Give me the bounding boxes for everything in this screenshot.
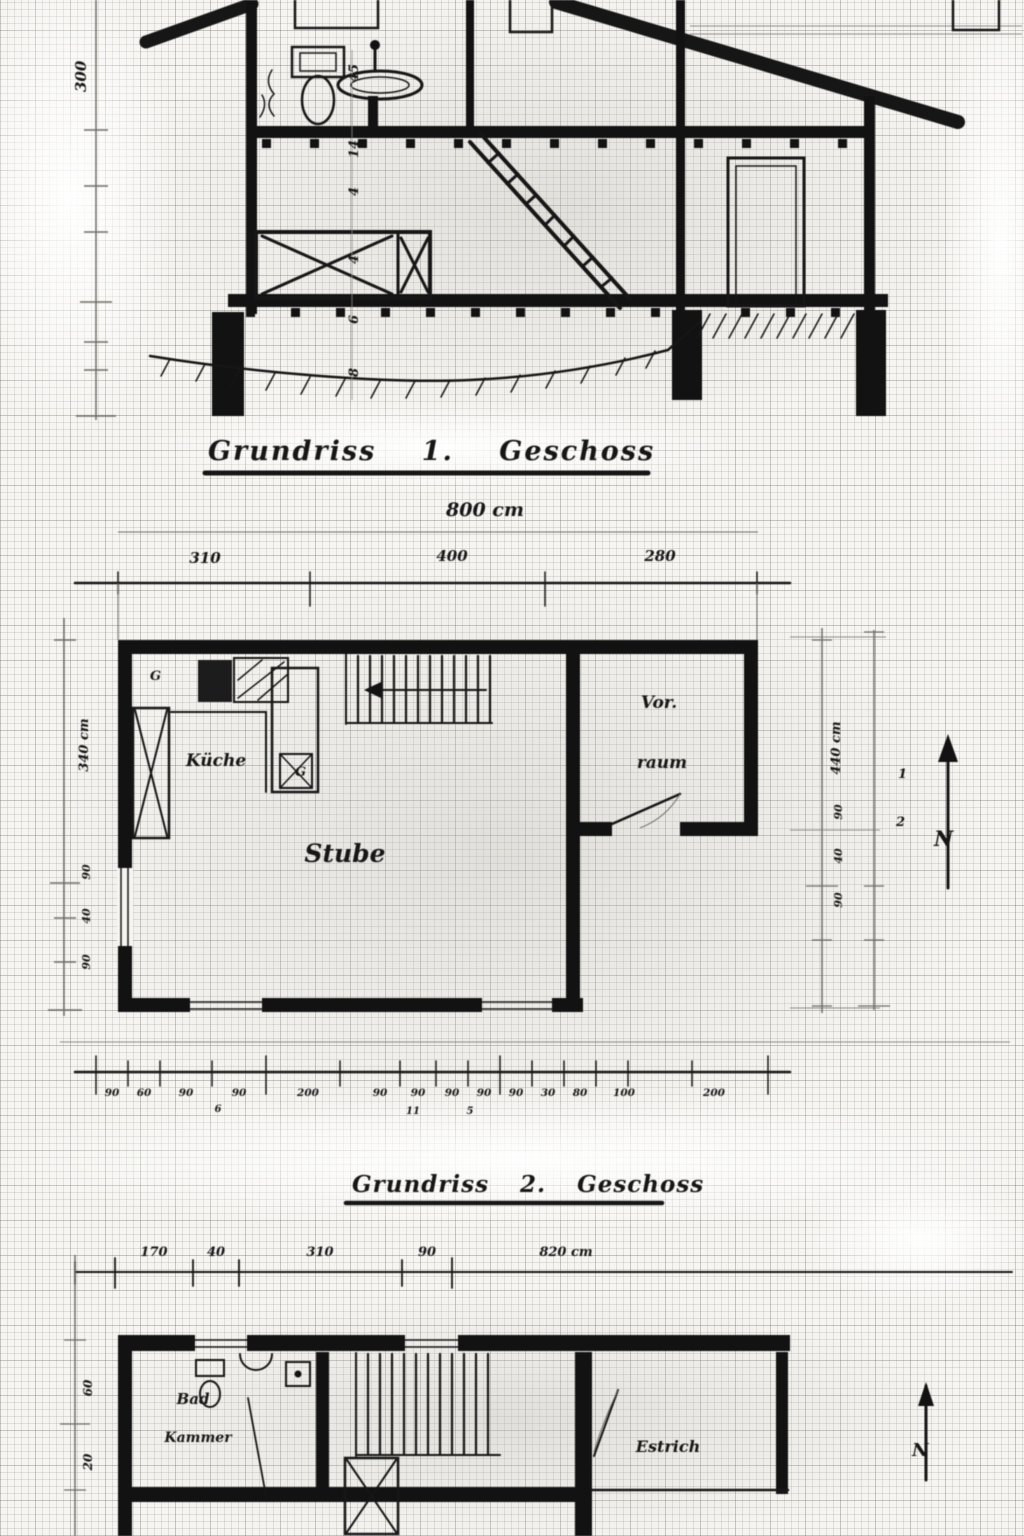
kitchen-fixtures: G G [133, 658, 318, 838]
dimension-label: 90 [509, 1087, 524, 1099]
wall-left [118, 1335, 132, 1536]
room-label-bath-1: Bad [176, 1390, 210, 1408]
north-label: N [911, 1440, 930, 1461]
plan1-title-text: Grundriss 1. Geschoss [208, 436, 655, 467]
floor-slab-upper [246, 126, 872, 138]
stair-rungs [488, 153, 612, 287]
dimension-label: 400 [436, 547, 468, 565]
dimension-label: 90 [411, 1087, 426, 1099]
plan1-left-dimensions: 340 cm 90 40 90 [48, 618, 93, 1016]
dimension-label: 8 [347, 368, 362, 377]
dimension-label: 14 [347, 140, 362, 158]
dimension-ticks [96, 1056, 768, 1094]
wall-hall-bottom [680, 822, 758, 836]
blueprint-scan-page: 300 45 14 4 4 6 8 Grundriss 1. Geschoss … [0, 0, 1024, 1536]
stair-arrow-head [364, 682, 381, 698]
plan2-left-dimensions: 60 20 [60, 1255, 95, 1536]
plan1-right-dimensions: 440 cm 90 40 90 1 2 [790, 628, 907, 1013]
fixture-mark: G [150, 669, 161, 684]
dimension-label: 310 [189, 549, 221, 567]
door [728, 158, 804, 306]
dimension-mark: 1 [898, 767, 907, 782]
floor-plan-1: 800 cm 310 400 280 [48, 499, 1010, 1117]
window [295, 0, 378, 28]
dimension-label: 80 [573, 1087, 588, 1099]
floor-joist-dots [246, 308, 840, 317]
overall-dimension-label: 800 cm [445, 499, 524, 521]
wall-top [247, 1335, 405, 1351]
dimension-label: 4 [347, 187, 362, 196]
wall-attic-left [575, 1352, 592, 1536]
north-arrow: N [911, 1382, 934, 1480]
dimension-label: 40 [80, 908, 93, 924]
floor-plan-2: 170 40 310 90 820 cm 60 20 [60, 1245, 1012, 1536]
pencil-line [790, 637, 886, 1008]
dimension-label: 310 [306, 1245, 333, 1260]
plan2-title-text: Grundriss 2. Geschoss [352, 1171, 704, 1198]
door-leaf [248, 1398, 266, 1496]
cupboard-cross [135, 710, 167, 836]
dimension-label: 30 [541, 1087, 556, 1099]
dimension-ticks [48, 640, 82, 1010]
dimension-label: 90 [445, 1087, 460, 1099]
scribble [260, 70, 274, 117]
wall-left [118, 640, 132, 1012]
dimension-label: 90 [832, 892, 845, 908]
room-label-living: Stube [304, 839, 385, 868]
wall-interior-upper [466, 0, 474, 134]
section-staircase [470, 133, 630, 308]
dimension-label: 200 [296, 1087, 320, 1099]
railing-x-brace [256, 232, 430, 298]
dimension-label: 200 [702, 1087, 726, 1099]
toilet-cistern-inner [300, 53, 336, 71]
dimension-ticks [118, 572, 757, 606]
wall-bottom [118, 998, 190, 1012]
foundation-pier [212, 312, 244, 416]
toilet-cistern [196, 1360, 224, 1376]
dimension-label: 90 [105, 1087, 120, 1099]
room-label-attic: Estrich [635, 1437, 700, 1456]
wall-interior [131, 1487, 592, 1502]
dimension-submark: 11 [406, 1106, 420, 1117]
railing-cross [262, 234, 428, 296]
north-arrow-head [938, 734, 958, 762]
dimension-submark: 6 [215, 1104, 222, 1115]
architectural-drawing: 300 45 14 4 4 6 8 Grundriss 1. Geschoss … [0, 0, 1024, 1536]
dimension-mark: 2 [895, 815, 905, 830]
dimension-label: 45 [347, 64, 362, 82]
north-label: N [933, 826, 954, 851]
toilet-bowl [302, 76, 334, 124]
room-label-hall-1: Vor. [641, 693, 677, 713]
dimension-label: 20 [81, 1453, 95, 1471]
roof-slope-left [146, 4, 252, 42]
floor-plan-1-title: Grundriss 1. Geschoss [205, 436, 655, 473]
stair-treads [368, 1354, 488, 1454]
dimension-label: 6 [347, 315, 362, 324]
dimension-label: 90 [179, 1087, 194, 1099]
dimension-label: 90 [373, 1087, 388, 1099]
north-arrow-head [918, 1382, 934, 1406]
window [510, 0, 552, 32]
dimension-label: 300 [72, 60, 90, 92]
bath-fixtures [196, 1354, 310, 1496]
dimension-label: 170 [140, 1245, 167, 1260]
dimension-label: 440 cm [829, 721, 844, 774]
plan2-staircase [345, 1353, 500, 1534]
extension-lines [118, 583, 757, 640]
fixture-dot [295, 1371, 302, 1378]
foundation-pier [856, 310, 886, 416]
door-swing-arc [640, 794, 680, 828]
wall-bottom [262, 998, 482, 1012]
roof-slope-right [556, 2, 958, 122]
north-arrow: N [933, 734, 958, 888]
dimension-label: 60 [137, 1087, 152, 1099]
wall-divider [566, 640, 580, 1012]
door-leaf [612, 794, 680, 824]
wall-bath-right [316, 1352, 329, 1502]
ground-hatching [697, 314, 854, 338]
wall-hall-bottom [580, 822, 612, 836]
wall-interior [676, 0, 685, 310]
dimension-label: 90 [477, 1087, 492, 1099]
plan1-staircase [346, 654, 492, 724]
dimension-label: 90 [832, 804, 845, 820]
sink-fixture [338, 40, 422, 128]
window-gap [117, 868, 133, 946]
wall-hall-right [744, 640, 758, 836]
dimension-label: 340 cm [77, 718, 92, 771]
dimension-label: 100 [613, 1087, 636, 1099]
door-inner [736, 166, 796, 306]
door-leaf [594, 1390, 618, 1456]
dimension-submark: 5 [467, 1106, 474, 1117]
dimension-label: 40 [207, 1245, 225, 1260]
dimension-label: 4 [347, 255, 362, 264]
room-label-bath-2: Kammer [163, 1430, 233, 1446]
dimension-label: 90 [80, 864, 93, 880]
dimension-label: 40 [832, 848, 845, 864]
wall-top [118, 640, 758, 654]
wall-top [458, 1335, 790, 1351]
cross-section-drawing: 300 45 14 4 4 6 8 [72, 0, 1022, 420]
dimension-label: 90 [418, 1245, 436, 1260]
counter-hatch [238, 660, 288, 700]
plan1-bottom-dimensions: 90 60 90 90 200 90 90 90 90 90 30 80 100… [60, 1042, 1010, 1117]
sink-faucet-knob [370, 40, 380, 50]
wall-attic-right [776, 1352, 788, 1494]
dimension-label: 60 [81, 1379, 95, 1396]
toilet-fixture [260, 47, 344, 124]
room-label-hall-2: raum [637, 753, 687, 773]
dimension-label: 280 [643, 547, 676, 565]
sink-pedestal [368, 96, 378, 128]
fixture-mark: G [295, 765, 306, 780]
floor-plan-2-title: Grundriss 2. Geschoss [346, 1171, 704, 1203]
stove [198, 660, 232, 702]
wash-basin [240, 1354, 272, 1370]
dimension-label: 90 [232, 1087, 247, 1099]
room-label-kitchen: Küche [185, 751, 246, 771]
dimension-label: 90 [80, 954, 93, 970]
dimension-label: 820 cm [539, 1245, 592, 1260]
